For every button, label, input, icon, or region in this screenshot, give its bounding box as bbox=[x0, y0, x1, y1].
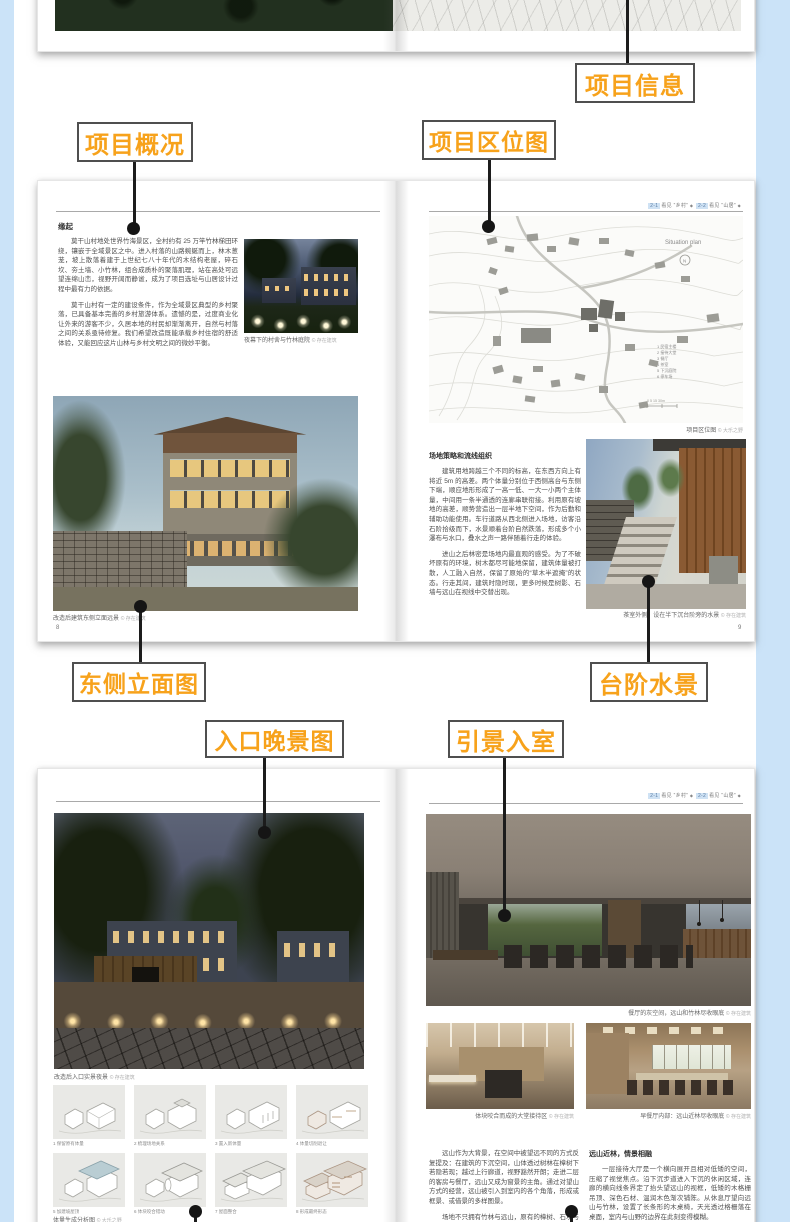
masterplan-drawing bbox=[393, 0, 741, 31]
axon-sketch bbox=[134, 1085, 206, 1139]
diagram-caption: 4 体量切削退让 bbox=[296, 1141, 368, 1147]
axon-sketch bbox=[53, 1085, 125, 1139]
callout-line-step bbox=[647, 586, 650, 662]
callout-dot-night bbox=[258, 826, 271, 839]
photo-caption: 改造后建筑东侧立面远景 © 存在建筑 bbox=[53, 615, 293, 623]
grid-caption: 体量生成分析图 © 大乐之野 bbox=[53, 1217, 253, 1222]
stone-wall-uplights bbox=[54, 982, 364, 1031]
stone-retaining-wall bbox=[53, 531, 187, 589]
axon-sketch bbox=[296, 1153, 368, 1207]
diagram-caption: 2 梳理场地关系 bbox=[134, 1141, 206, 1147]
axon-sketch bbox=[215, 1153, 287, 1207]
section-subheading: 场地策略和流线组织 bbox=[429, 451, 492, 461]
lobby-photo bbox=[426, 1023, 574, 1109]
callout-label-overview: 项目概况 bbox=[77, 122, 193, 162]
section-subheading: 远山近林，情景相融 bbox=[589, 1149, 652, 1159]
massing-diagram bbox=[134, 1085, 206, 1139]
callout-label-project-info: 项目信息 bbox=[575, 63, 695, 103]
paragraph: 远山作为大背景，在空间中被望远不同的方式反复提及：在建筑的下沉空间，山体透过树林… bbox=[429, 1149, 579, 1207]
callout-dot-scenery bbox=[498, 909, 511, 922]
paragraph: 莫干山村有一定的建设条件，作为全域景区典型的乡村聚落，已具备基本完善的乡村旅游体… bbox=[58, 301, 238, 349]
photo-caption: 早餐厅内部：远山近林尽收眼底 © 存在建筑 bbox=[586, 1113, 751, 1121]
pendant-lamp bbox=[697, 922, 701, 926]
callout-dot-bottom-left bbox=[189, 1205, 202, 1218]
body-text-column: 一层接待大厅是一个横向展开且相对低矮的空间，压缩了视觉焦点。沿下沉步道进入下沉的… bbox=[589, 1165, 751, 1222]
spread-gutter bbox=[383, 181, 409, 641]
window-mullions bbox=[652, 1045, 731, 1069]
body-text-block: 建筑用地跨越三个不同的标高，在东西方向上有将近 5m 的高差。两个体量分别位于西… bbox=[429, 467, 581, 604]
page-rule bbox=[429, 803, 743, 804]
stone-pavement bbox=[54, 1028, 364, 1069]
callout-line-scenery bbox=[503, 758, 506, 911]
photo-caption: 改造后入口实景夜景 © 存在建筑 bbox=[54, 1074, 294, 1082]
callout-line-east bbox=[139, 611, 142, 662]
running-head: 2-1看见 “乡村” ◆ 2-2看见 “山居” ◆ bbox=[576, 202, 741, 209]
svg-text:6 停车场: 6 停车场 bbox=[657, 373, 672, 379]
running-head: 2-1看见 “乡村” ◆ 2-2看见 “山居” ◆ bbox=[576, 792, 741, 799]
spread-gutter bbox=[383, 0, 409, 51]
paragraph: 进山之后林密是场地内最直观的感受。为了不破坏原有的环境，树木都尽可能地保留，建筑… bbox=[429, 550, 581, 598]
photo-caption: 茶室外侧：设在半下沉台阶旁的水景 © 存在建筑 bbox=[586, 612, 746, 620]
map-caption: 项目区位图 © 大乐之野 bbox=[538, 427, 743, 435]
lamp-cord bbox=[699, 900, 700, 923]
building-shape bbox=[262, 278, 296, 302]
slat-wall bbox=[426, 872, 459, 960]
window-band bbox=[652, 1045, 731, 1069]
dining-photo bbox=[586, 1023, 751, 1109]
right-blue-strip bbox=[756, 0, 790, 1222]
entrance-night-photo bbox=[54, 813, 364, 1069]
tables-chairs bbox=[504, 945, 693, 968]
callout-dot-east bbox=[134, 600, 147, 613]
body-text-block: 莫干山村地处世界竹海景区，全村约有 25 万竿竹林梯田环绕，镶嵌于全域景区之中。… bbox=[58, 237, 238, 355]
section-heading: 缘起 bbox=[58, 221, 73, 232]
svg-text:4 茶室: 4 茶室 bbox=[657, 361, 668, 367]
svg-text:3 餐厅: 3 餐厅 bbox=[657, 355, 668, 361]
window-row bbox=[113, 931, 230, 944]
window-row bbox=[304, 289, 352, 296]
page-number: 8 bbox=[56, 625, 59, 631]
photo-caption: 餐厅的灰空间，远山和竹林尽收眼底 © 存在建筑 bbox=[518, 1010, 751, 1018]
pendant-lamp bbox=[720, 918, 724, 922]
dusk-courtyard-photo bbox=[244, 239, 358, 333]
diagram-caption: 8 形成最终形态 bbox=[296, 1209, 368, 1215]
lit-counter bbox=[429, 1075, 476, 1083]
callout-line-night bbox=[263, 758, 266, 828]
massing-diagram bbox=[53, 1085, 125, 1139]
diagram-caption: 7 屋面整合 bbox=[215, 1209, 287, 1215]
left-blue-strip bbox=[0, 0, 14, 1222]
massing-diagram bbox=[215, 1085, 287, 1139]
svg-text:0 5 15 30m: 0 5 15 30m bbox=[647, 399, 665, 403]
diagram-caption: 5 加建坡屋顶 bbox=[53, 1209, 125, 1215]
window-row bbox=[265, 286, 294, 291]
spread-gutter bbox=[383, 769, 409, 1222]
east-elevation-photo bbox=[53, 396, 358, 611]
long-table bbox=[636, 1073, 728, 1080]
lamp-cord bbox=[722, 900, 723, 919]
svg-text:2 接待大堂: 2 接待大堂 bbox=[657, 349, 676, 355]
callout-label-location: 项目区位图 bbox=[422, 120, 556, 160]
axon-sketch bbox=[215, 1085, 287, 1139]
body-text-column: 远山作为大背景，在空间中被望远不同的方式反复提及：在建筑的下沉空间，山体透过树林… bbox=[429, 1149, 579, 1222]
site-plan-map: Situation plan N 1 民宿主楼 2 接待大堂 3 餐厅 4 茶室… bbox=[429, 216, 743, 423]
terrace-interior-photo bbox=[426, 814, 751, 1006]
svg-text:N: N bbox=[683, 259, 686, 264]
photo-caption: 夜幕下的村舍与竹林庭院 © 存在建筑 bbox=[244, 337, 358, 345]
callout-line-location bbox=[488, 160, 491, 222]
bench-shape bbox=[433, 950, 498, 960]
wall-shape bbox=[586, 1033, 629, 1093]
building-shape bbox=[277, 931, 348, 987]
tree-shape bbox=[263, 478, 358, 603]
paragraph: 一层接待大厅是一个横向展开且相对低矮的空间，压缩了视觉焦点。沿下沉步道进入下沉的… bbox=[589, 1165, 751, 1222]
window-row bbox=[284, 943, 341, 957]
paragraph: 建筑用地跨越三个不同的标高，在东西方向上有将近 5m 的高差。两个体量分别位于西… bbox=[429, 467, 581, 544]
svg-text:5 下沉庭院: 5 下沉庭院 bbox=[657, 367, 676, 373]
window-row bbox=[304, 274, 352, 281]
ceiling-light-slots bbox=[426, 1023, 574, 1047]
massing-diagram bbox=[296, 1085, 368, 1139]
axon-sketch bbox=[53, 1153, 125, 1207]
page-rule bbox=[429, 211, 743, 212]
axon-sketch bbox=[296, 1085, 368, 1139]
promo-page: © 存在建筑 缘起 莫干山村地处世界竹海景区，全村约有 25 万竿竹林梯田环绕，… bbox=[0, 0, 790, 1222]
callout-label-night: 入口晚景图 bbox=[205, 720, 344, 758]
book-spread-2: 改造后入口实景夜景 © 存在建筑 bbox=[37, 768, 755, 1222]
massing-diagram bbox=[215, 1153, 287, 1207]
callout-label-east: 东侧立面图 bbox=[72, 662, 206, 702]
chairs-row bbox=[627, 1080, 733, 1095]
svg-text:Situation plan: Situation plan bbox=[665, 240, 701, 246]
book-spread-1: 缘起 莫干山村地处世界竹海景区，全村约有 25 万竿竹林梯田环绕，镶嵌于全域景区… bbox=[37, 180, 755, 642]
massing-diagram bbox=[296, 1153, 368, 1207]
diagram-caption: 3 置入新体量 bbox=[215, 1141, 287, 1147]
massing-diagram bbox=[53, 1153, 125, 1207]
book-spread-top: © 存在建筑 bbox=[37, 0, 755, 52]
svg-text:1 民宿主楼: 1 民宿主楼 bbox=[657, 343, 676, 349]
page-rule bbox=[56, 211, 380, 212]
photo-caption: 体块咬合而成的大堂接待区 © 存在建筑 bbox=[426, 1113, 574, 1121]
callout-dot-bottom-right bbox=[565, 1205, 578, 1218]
gable-wood-band bbox=[163, 433, 297, 453]
mountain-view bbox=[686, 904, 751, 929]
paragraph: 莫干山村地处世界竹海景区，全村约有 25 万竿竹林梯田环绕，镶嵌于全域景区之中。… bbox=[58, 237, 238, 295]
callout-dot-step bbox=[642, 575, 655, 588]
massing-diagram bbox=[134, 1153, 206, 1207]
callout-dot-overview bbox=[127, 222, 140, 235]
aerial-forest-photo: © 存在建筑 bbox=[55, 0, 393, 31]
page-rule bbox=[56, 801, 380, 802]
steps-water-photo bbox=[586, 439, 746, 609]
diagram-caption: 1 保留原有体量 bbox=[53, 1141, 125, 1147]
ground-shape bbox=[53, 587, 358, 611]
callout-label-step: 台阶水景 bbox=[590, 662, 708, 702]
building-shape bbox=[301, 267, 356, 305]
axon-sketch bbox=[134, 1153, 206, 1207]
window-row bbox=[170, 459, 291, 477]
callout-line-project-info bbox=[626, 0, 629, 64]
reception-desk bbox=[485, 1070, 522, 1098]
callout-label-scenery: 引景入室 bbox=[448, 720, 564, 758]
callout-dot-location bbox=[482, 220, 495, 233]
terrace-floor-shape bbox=[586, 584, 746, 610]
paragraph: 场地不只拥有竹林与远山，原有的樟树、石坎与溪流，连同山风一起构成记忆。我们用竹林… bbox=[429, 1213, 579, 1222]
callout-line-overview bbox=[133, 162, 136, 224]
page-number: 9 bbox=[738, 625, 741, 631]
lawn-lanterns bbox=[244, 307, 358, 333]
